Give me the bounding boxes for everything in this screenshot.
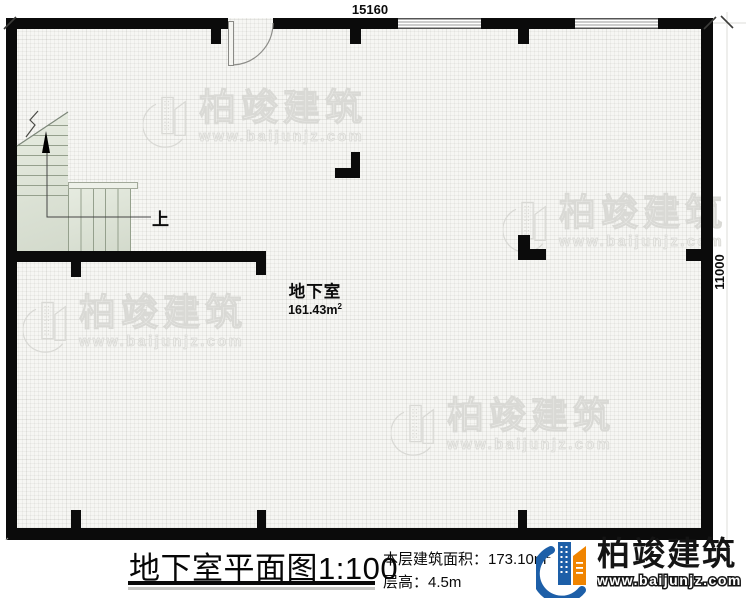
wall-interior — [6, 251, 266, 262]
column-bottom-1 — [71, 510, 81, 529]
column-bottom-2 — [257, 510, 266, 529]
wall-interior-end-stub — [256, 262, 266, 275]
title-block: 地下室平面图1:100 本层建筑面积：173.10m2 层高：4.5m — [0, 540, 750, 598]
wall-left — [6, 18, 17, 540]
brand-logo-icon — [536, 536, 594, 598]
brand-url-banner: www.baijunjz.com — [597, 572, 749, 590]
wall-stub-mid-horizontal — [518, 249, 546, 260]
title-underline-black — [128, 581, 375, 585]
stair-flight-horizontal — [68, 185, 131, 251]
column-bottom-3 — [518, 510, 527, 529]
dimension-top-width: 15160 — [340, 2, 400, 17]
wall-stub-center-horizontal — [335, 168, 360, 178]
room-area-value: 161.43m — [288, 303, 337, 317]
dimension-right-height: 11000 — [712, 250, 726, 294]
stair-direction-label: 上 — [152, 205, 169, 230]
window-2 — [575, 18, 658, 29]
floor-area-info: 本层建筑面积：173.10m2 — [383, 548, 551, 569]
brand-name: 柏竣建筑 — [597, 536, 749, 572]
column-top-3 — [518, 29, 529, 44]
wall-top-segment-3 — [481, 18, 575, 29]
room-area-sup: 2 — [337, 302, 341, 311]
wall-top-segment-2 — [273, 18, 398, 29]
brand-logo: 柏竣建筑 www.baijunjz.com — [536, 536, 749, 598]
stair-treads — [68, 185, 131, 251]
floor-area-text: 本层建筑面积：173.10m — [383, 551, 546, 568]
stair-landing-edge — [68, 182, 138, 189]
title-underline-gray — [128, 587, 375, 590]
window-1 — [398, 18, 481, 29]
door-leaf — [228, 21, 234, 66]
column-top-2 — [350, 29, 361, 44]
floor-height-info: 层高：4.5m — [383, 571, 461, 592]
column-interior — [71, 262, 81, 277]
room-name: 地下室 — [268, 278, 362, 302]
room-area: 161.43m2 — [268, 302, 362, 317]
room-label: 地下室 161.43m2 — [268, 278, 362, 317]
wall-top-segment-1 — [6, 18, 228, 29]
column-top-1 — [211, 29, 221, 44]
brand-url: www.baijunjz.com — [597, 572, 742, 588]
wall-stub-right — [686, 249, 701, 261]
floor-plan-sheet: 柏竣建筑 www.baijunjz.com 柏竣建筑 www.baijunjz.… — [0, 0, 750, 598]
